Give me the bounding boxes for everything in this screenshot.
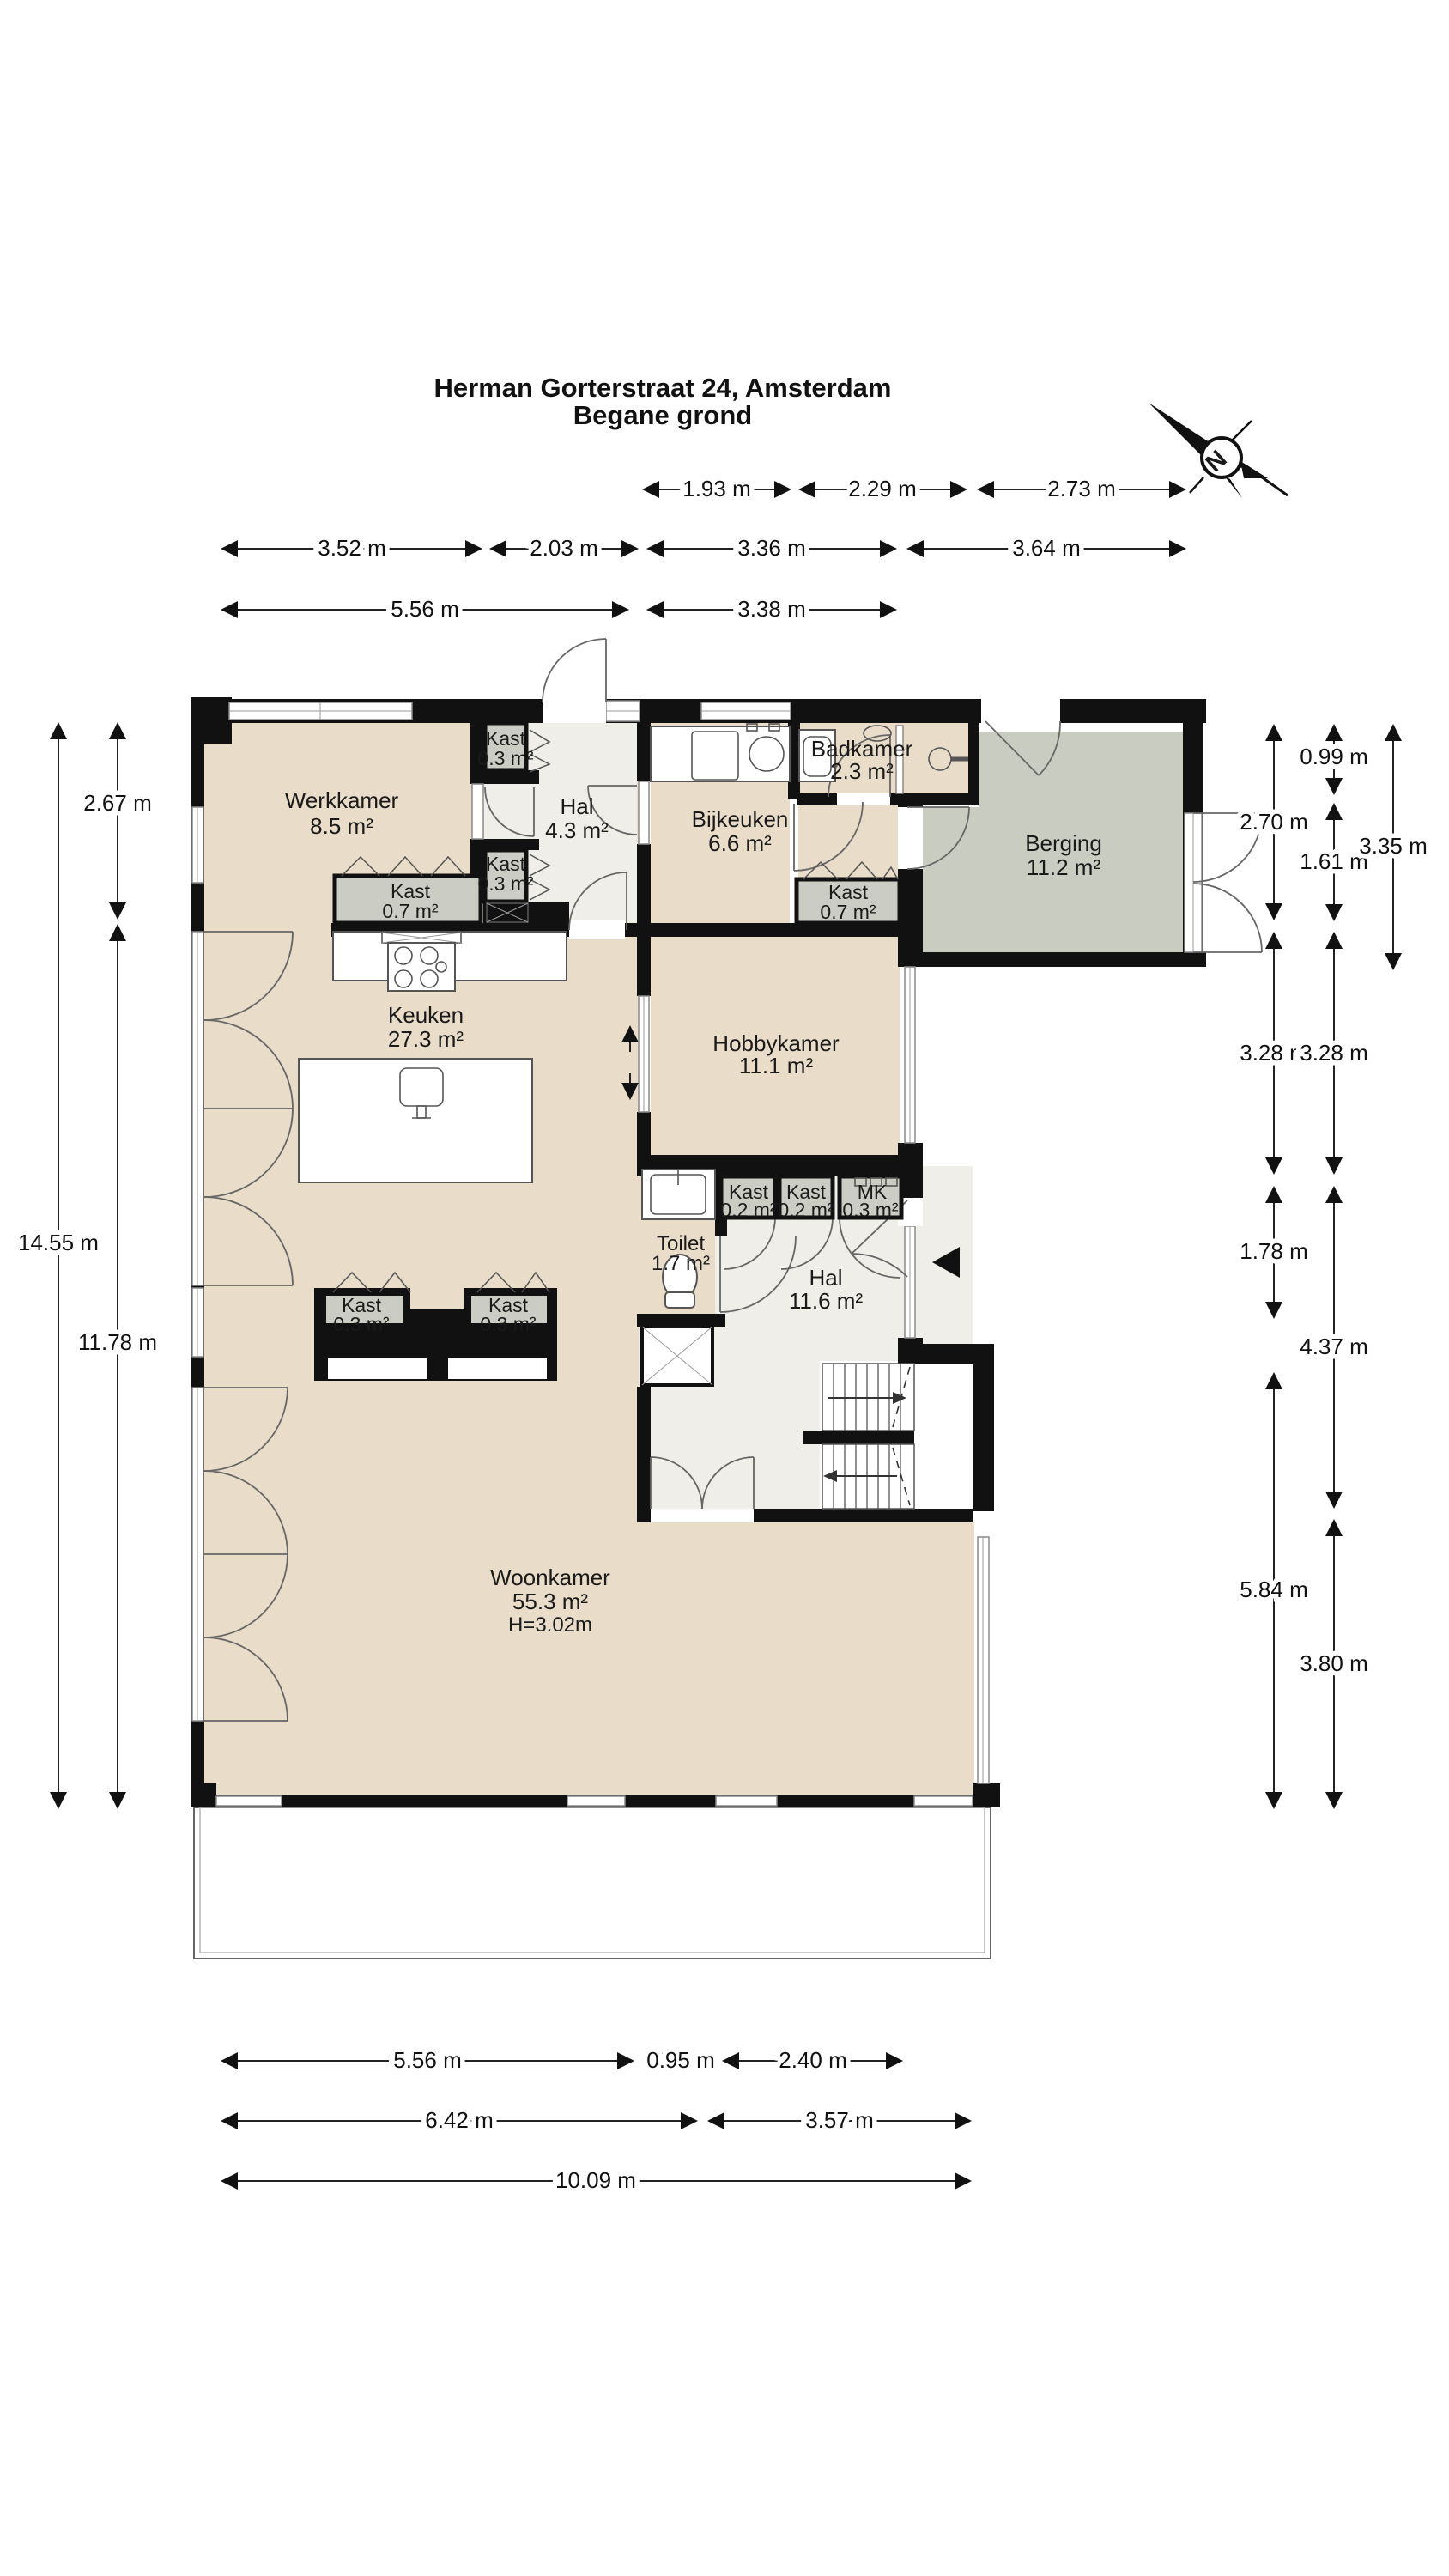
dim-label: 0.99 m [1300, 744, 1368, 769]
room-ceiling-height-woonkamer: H=3.02m [508, 1613, 592, 1637]
dim-label: 2.40 m [779, 2047, 847, 2073]
dim-label: 3.35 m [1359, 833, 1428, 859]
dim-label: 1.78 m [1240, 1238, 1308, 1264]
dim-label: 5.56 m [391, 596, 459, 622]
room-area-kast: 0.3 m² [333, 1313, 390, 1335]
dim-label: 3.64 m [1012, 535, 1081, 561]
dim-label: 2.03 m [530, 535, 598, 561]
page-title: Herman Gorterstraat 24, Amsterdam [434, 373, 892, 403]
dim-label: 2.70 m [1240, 809, 1308, 835]
room-area-berging: 11.2 m² [1027, 854, 1101, 880]
room-area-kast: 0.7 m² [382, 900, 439, 922]
dim-label: 3.28 m [1300, 1040, 1368, 1066]
dim-label: 2.67 m [83, 790, 152, 816]
dim-label: 5.84 m [1240, 1577, 1308, 1602]
room-area-kast: 0.2 m² [720, 1199, 777, 1221]
room-label-hal: Hal [809, 1265, 842, 1291]
room-area-kast: 0.2 m² [778, 1199, 834, 1221]
dim-label: 5.56 m [393, 2047, 462, 2073]
room-area-kast: 0.3 m² [477, 747, 534, 769]
room-label-bijkeuken: Bijkeuken [692, 806, 789, 832]
room-area-toilet: 1.7 m² [652, 1252, 710, 1275]
counter [651, 726, 790, 781]
dim-label: 10.09 m [555, 2167, 636, 2193]
room-area-werkkamer: 8.5 m² [310, 813, 373, 839]
compass-rose: N [1149, 403, 1288, 498]
dim-label: 3.57 m [805, 2107, 874, 2133]
dim-label: 1.61 m [1300, 848, 1368, 874]
dim-label: 4.37 m [1300, 1334, 1368, 1359]
room-label-werkkamer: Werkkamer [285, 787, 399, 813]
room-label-berging: Berging [1025, 830, 1102, 856]
room-area-hobbykamer: 11.1 m² [739, 1053, 814, 1078]
room-label-keuken: Keuken [388, 1002, 464, 1028]
room-area-badkamer: 2.3 m² [830, 758, 894, 784]
floor-plan-drawing: N 1.93 [0, 0, 1449, 2576]
room-area-hal: 11.6 m² [789, 1288, 864, 1314]
dim-label: 3.38 m [737, 596, 806, 622]
dim-label: 3.80 m [1300, 1650, 1368, 1676]
dim-label: 2.29 m [848, 476, 917, 501]
dim-label: 3.52 m [318, 535, 386, 561]
dim-label: 1.93 m [682, 476, 751, 501]
room-label-woonkamer: Woonkamer [490, 1564, 610, 1590]
dim-label: 14.55 m [18, 1230, 99, 1255]
room-area-woonkamer: 55.3 m² [512, 1589, 588, 1614]
terrace [194, 1807, 991, 1959]
room-area-kast: 0.7 m² [820, 901, 876, 923]
dim-label: 3.36 m [737, 535, 806, 561]
floor-plan-page: N 1.93 [0, 0, 1449, 2576]
room-area-bijkeuken: 6.6 m² [708, 830, 772, 856]
dim-label: 11.78 m [78, 1329, 157, 1355]
room-area-hal-boven: 4.3 m² [545, 817, 609, 843]
dim-label: 6.42 m [425, 2107, 494, 2133]
kitchen-island [299, 1059, 532, 1182]
room-area-meterkast: 0.3 m² [842, 1199, 899, 1221]
dim-label: 3.28 m [1240, 1040, 1308, 1066]
room-area-kast: 0.3 m² [480, 1313, 537, 1335]
room-area-kast: 0.3 m² [477, 872, 534, 895]
dim-label: 0.95 m [646, 2047, 715, 2073]
page-subtitle: Begane grond [573, 400, 752, 430]
room-area-keuken: 27.3 m² [388, 1026, 464, 1052]
dim-label: 2.73 m [1047, 476, 1116, 501]
title-block: Herman Gorterstraat 24, Amsterdam Begane… [434, 373, 892, 430]
room-label-hal-boven: Hal [560, 793, 593, 819]
